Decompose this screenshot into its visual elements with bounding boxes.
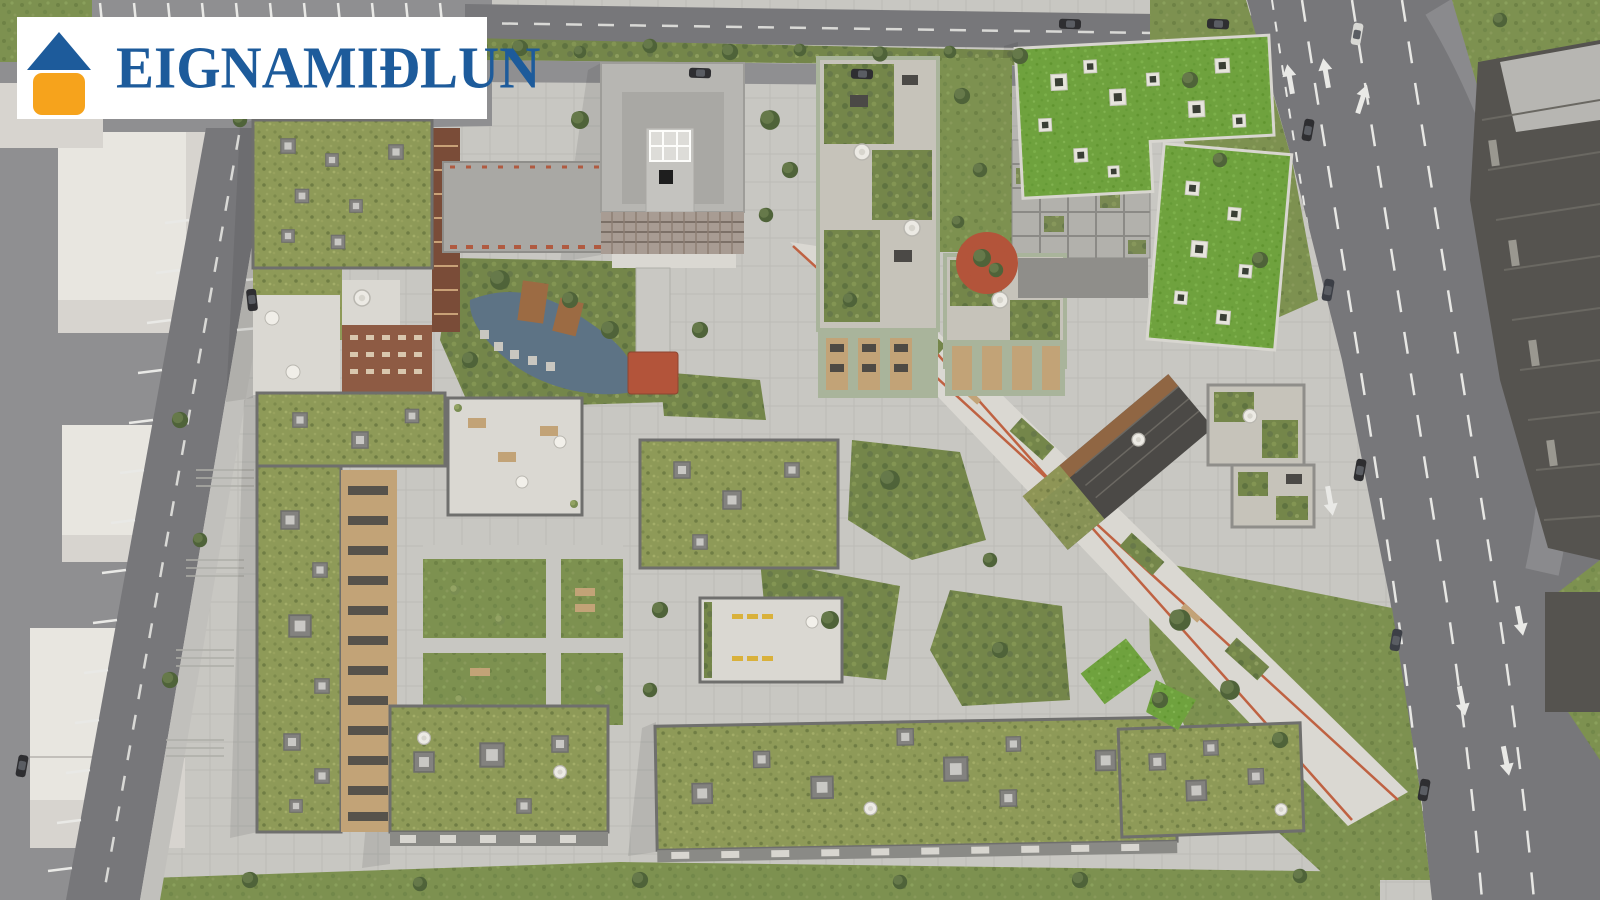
- brick-block-nw: [253, 120, 460, 398]
- roof-triangle-icon: [27, 32, 91, 70]
- roof-terraces-ne: [448, 398, 582, 515]
- footbridge: [636, 268, 670, 352]
- bright-roof-east: [1147, 144, 1292, 350]
- mint-building-west: [818, 58, 938, 398]
- brand-name: EIGNAMIÐLUN: [116, 38, 540, 97]
- ne-garden: [940, 58, 1012, 252]
- low-slab: [443, 162, 623, 252]
- existing-building-2: [1545, 592, 1600, 712]
- main-courtyard: [423, 545, 623, 725]
- brand-logo: EIGNAMIÐLUN: [17, 17, 487, 119]
- bridge-plinth: [628, 352, 678, 394]
- site-plan-svg: [0, 0, 1600, 900]
- circular-planter: [961, 237, 1013, 289]
- ne-cluster: [818, 35, 1292, 398]
- house-icon: [30, 26, 108, 110]
- aerial-site-plan-render: EIGNAMIÐLUN: [0, 0, 1600, 900]
- lounger-terrace: [700, 598, 842, 682]
- sw-slab: [390, 706, 608, 846]
- house-body-icon: [33, 73, 85, 115]
- south-slab: [655, 717, 1177, 862]
- ne-facade: [1018, 258, 1148, 298]
